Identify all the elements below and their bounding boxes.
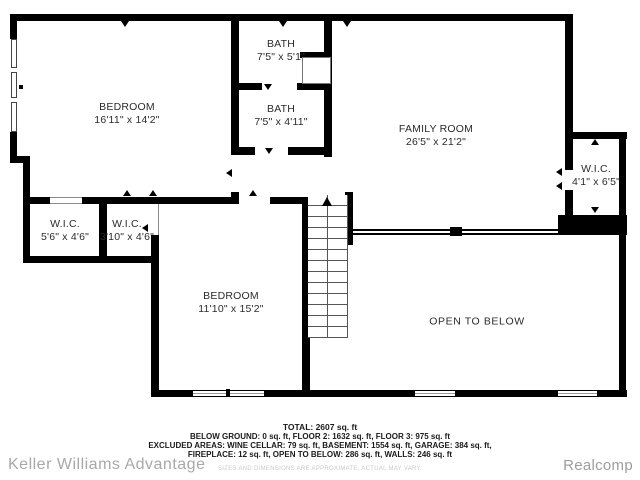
- room-name: OPEN TO BELOW: [429, 316, 525, 329]
- wall: [456, 390, 557, 397]
- room-dims: 11'10" x 15'2": [198, 303, 263, 316]
- room-label-bath-2: BATH 7'5" x 4'11": [254, 103, 307, 129]
- door-marker: [249, 190, 257, 196]
- room-label-wic-right: W.I.C. 4'1" x 6'5": [572, 163, 620, 189]
- room-name: BATH: [254, 103, 307, 116]
- wall: [10, 14, 17, 39]
- room-dims: 7'5" x 5'1": [257, 51, 305, 64]
- room-dims: 4'1" x 6'5": [572, 176, 620, 189]
- room-name: W.I.C.: [41, 218, 89, 231]
- wall: [151, 235, 159, 397]
- wall: [10, 132, 17, 163]
- shower-fixture: [302, 57, 331, 84]
- door-marker: [265, 148, 273, 154]
- room-name: W.I.C.: [100, 218, 154, 231]
- wall: [10, 14, 573, 21]
- window-mullion: [11, 97, 17, 103]
- summary-line-1: BELOW GROUND: 0 sq. ft, FLOOR 2: 1632 sq…: [0, 433, 640, 441]
- window-marker: [19, 85, 23, 89]
- door-marker: [123, 190, 131, 196]
- window: [11, 39, 17, 132]
- summary-line-2: EXCLUDED AREAS: WINE CELLAR: 79 sq. ft, …: [0, 442, 640, 450]
- door-marker: [556, 168, 562, 176]
- stairs-center-line: [327, 195, 328, 338]
- door-marker: [591, 207, 599, 213]
- room-name: BEDROOM: [94, 101, 159, 114]
- wall: [565, 132, 627, 139]
- room-label-wic-2: W.I.C. 3'10" x 4'6": [100, 218, 154, 244]
- room-dims: 7'5" x 4'11": [254, 116, 307, 129]
- room-dims: 3'10" x 4'6": [100, 231, 154, 244]
- wall: [565, 14, 573, 139]
- wall: [231, 192, 239, 204]
- room-label-open-to-below: OPEN TO BELOW: [429, 316, 525, 329]
- door-marker: [343, 21, 351, 27]
- wall: [231, 14, 239, 155]
- wall: [324, 14, 332, 157]
- agency-logo-text: Keller Williams Advantage: [8, 456, 205, 474]
- room-dims: 5'6" x 4'6": [41, 231, 89, 244]
- door-marker: [226, 169, 232, 177]
- door-marker: [121, 21, 129, 27]
- door-marker: [264, 84, 272, 90]
- door-marker: [279, 21, 287, 27]
- door-marker: [149, 190, 157, 196]
- floorplan-canvas: BEDROOM 16'11" x 14'2" BATH 7'5" x 5'1" …: [0, 0, 640, 480]
- wall: [265, 390, 414, 397]
- summary-total: TOTAL: 2607 sq. ft: [0, 423, 640, 432]
- room-label-bedroom-2: BEDROOM 11'10" x 15'2": [198, 290, 263, 316]
- room-dims: 16'11" x 14'2": [94, 114, 159, 127]
- wall: [82, 197, 238, 204]
- room-name: W.I.C.: [572, 163, 620, 176]
- window-post: [226, 389, 230, 397]
- door-opening: [50, 197, 82, 204]
- room-label-family-room: FAMILY ROOM 26'5" x 21'2": [399, 123, 473, 149]
- railing-post: [450, 227, 462, 236]
- window: [414, 390, 456, 397]
- window: [557, 390, 598, 397]
- window-mullion: [11, 67, 17, 73]
- room-label-bath-1: BATH 7'5" x 5'1": [257, 38, 305, 64]
- stairs-direction-arrow: [322, 197, 332, 206]
- room-name: BEDROOM: [198, 290, 263, 303]
- wall: [23, 156, 30, 263]
- provider-logo-text: Realcomp: [563, 457, 633, 474]
- door-marker: [591, 139, 599, 145]
- stairs: [308, 195, 348, 338]
- room-dims: 26'5" x 21'2": [399, 136, 473, 149]
- room-label-wic-1: W.I.C. 5'6" x 4'6": [41, 218, 89, 244]
- door-marker: [556, 182, 562, 190]
- room-name: FAMILY ROOM: [399, 123, 473, 136]
- room-name: BATH: [257, 38, 305, 51]
- wall: [23, 256, 159, 263]
- wall: [565, 190, 573, 222]
- room-label-bedroom-1: BEDROOM 16'11" x 14'2": [94, 101, 159, 127]
